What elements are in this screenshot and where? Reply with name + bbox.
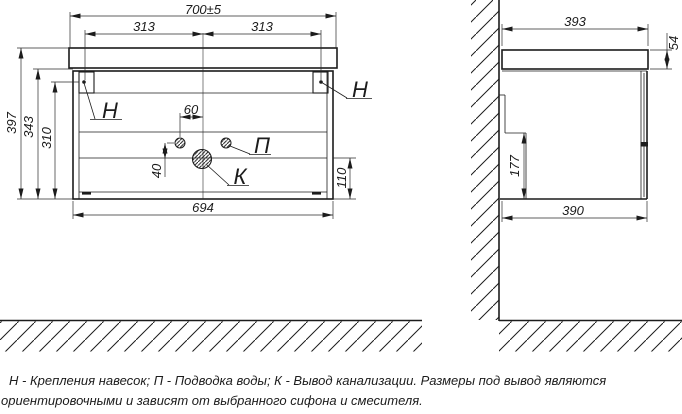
leader-p (230, 146, 250, 154)
dim-313-right-label: 313 (251, 19, 273, 34)
dim-310-label: 310 (39, 126, 54, 148)
foot-mark-left (82, 192, 91, 195)
dim-40-label: 40 (149, 163, 164, 178)
dim-54-label: 54 (666, 36, 681, 50)
dim-397-label: 397 (4, 111, 19, 133)
front-dimensions: 700±5 313 313 397 343 310 694 110 60 (4, 2, 356, 219)
vanity-cabinet-drawing: 700±5 313 313 397 343 310 694 110 60 (0, 0, 682, 414)
water-supply-hole-left (175, 138, 185, 148)
drain-hole (193, 150, 212, 169)
floor-hatching-front (0, 322, 422, 352)
dim-110-label: 110 (334, 167, 349, 188)
dim-313-left-label: 313 (133, 19, 155, 34)
note-line-1: Н - Крепления навесок; П - Подводка воды… (9, 373, 606, 388)
dim-60-label: 60 (184, 102, 199, 117)
callout-labels: Н Н П К (84, 77, 372, 189)
dim-343-label: 343 (21, 115, 36, 137)
note-line-2: ориентировочными и зависят от выбранного… (1, 393, 423, 408)
floor-hatching-side (499, 322, 682, 352)
dim-390-label: 390 (562, 203, 584, 218)
wall-hatching (471, 0, 499, 320)
foot-mark-right (312, 192, 321, 195)
leader-k (207, 165, 229, 185)
label-h-right: Н (352, 77, 368, 102)
side-dimensions: 393 54 177 390 (502, 14, 681, 222)
label-p: П (254, 133, 270, 158)
leader-h-left (84, 83, 95, 119)
leader-h-right (321, 82, 347, 98)
label-k: К (234, 164, 248, 189)
technical-drawing-page: 700±5 313 313 397 343 310 694 110 60 (0, 0, 682, 414)
door-handle-mark (641, 142, 649, 147)
dim-177-label: 177 (507, 154, 522, 176)
countertop-side (502, 50, 648, 69)
label-h-left: Н (102, 98, 118, 123)
dim-700-label: 700±5 (185, 2, 222, 17)
water-supply-hole-right (221, 138, 231, 148)
dim-694-label: 694 (192, 200, 214, 215)
dim-393-label: 393 (564, 14, 586, 29)
legend-notes: Н - Крепления навесок; П - Подводка воды… (1, 373, 606, 408)
